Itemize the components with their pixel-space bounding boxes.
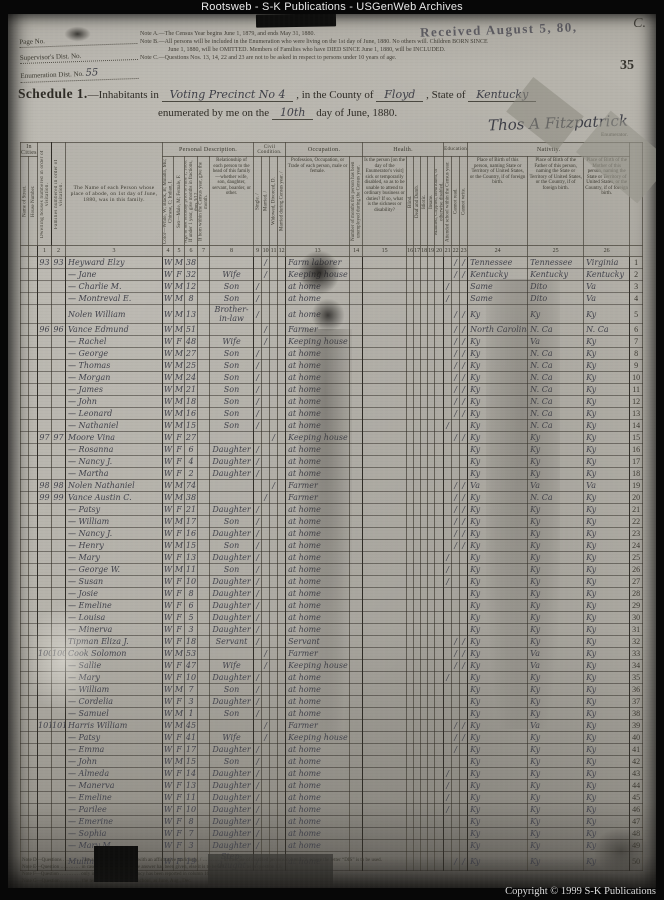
cell-age: 1 [185,708,198,720]
cell-maimed-mark [435,660,444,672]
cell-cannot-write-mark: / [460,324,468,336]
census-row: — SusanWF10Daughter/at home/KyKyKy27 [21,576,643,588]
cell-age: 8 [185,588,198,600]
col-occupation-header: Profession, Occupation, or Trade of each… [286,157,350,246]
cell-relationship [210,480,254,492]
cell-sickness [363,372,407,384]
cell-mother-birthplace: N. Ca [584,324,630,336]
cell-maimed-mark [435,269,444,281]
cell-birth-month [198,540,210,552]
cell-months-unemployed [350,396,363,408]
cell-insane-mark [428,324,435,336]
cell-school-mark [444,492,452,504]
cell-relationship: Daughter [210,588,254,600]
cell-age: 53 [185,648,198,660]
cell-relationship: Daughter [210,504,254,516]
cell-mother-birthplace: Ky [584,468,630,480]
cell-birth-month [198,816,210,828]
cell-age: 25 [185,360,198,372]
cell-widowed-mark [270,257,278,269]
cell-idiotic-mark [421,408,428,420]
cell-mother-birthplace: Ky [584,492,630,504]
cell-age: 15 [185,420,198,432]
cell-dwelling-no [38,576,52,588]
cell-person-name: Vance Austin C. [66,492,163,504]
cell-father-birthplace: Kentucky [528,269,584,281]
cell-married-year-mark [278,840,286,852]
cell-birth-month [198,516,210,528]
copyright-text: Copyright © 1999 S-K Publications [505,886,656,897]
precinct-handwriting: Voting Precinct No 4 [162,88,294,102]
group-health: Health. [363,143,444,157]
cell-sickness [363,384,407,396]
cell-dwelling-no [38,828,52,840]
cell-deaf-mark [414,744,421,756]
cell-maimed-mark [435,480,444,492]
cell-deaf-mark [414,780,421,792]
census-row: Tipman Eliza J.WF18Servant/Servant//KyKy… [21,636,643,648]
cell-sickness [363,708,407,720]
cell-age: 38 [185,492,198,504]
cell-deaf-mark [414,492,421,504]
cell-idiotic-mark [421,504,428,516]
cell-mother-birthplace: Ky [584,456,630,468]
cell-house [29,564,38,576]
cell-insane-mark [428,504,435,516]
cell-age: 24 [185,372,198,384]
cell-house [29,269,38,281]
cell-house [29,624,38,636]
cell-birth-month [198,828,210,840]
cell-street [21,269,29,281]
cell-age: 8 [185,816,198,828]
cell-street [21,324,29,336]
colnum-line [630,246,643,257]
cell-school-mark [444,408,452,420]
cell-sickness [363,257,407,269]
cell-deaf-mark [414,696,421,708]
cell-sex: F [174,612,185,624]
census-row: — Montreval E.WM8Son/at home/SameDitoVa4 [21,293,643,305]
cell-blind-mark [407,516,414,528]
cell-street [21,492,29,504]
cell-maimed-mark [435,384,444,396]
cell-insane-mark [428,372,435,384]
census-row: — JohnWM18Son/at home//KyN. CaKy12 [21,396,643,408]
cell-cannot-write-mark: / [460,732,468,744]
cell-street [21,360,29,372]
cell-family-no [52,744,66,756]
census-row: — Nancy J.WF16Daughter/at home//KyKyKy23 [21,528,643,540]
cell-widowed-mark [270,281,278,293]
cell-single-mark: / [254,576,262,588]
cell-insane-mark [428,396,435,408]
col-unemployed-header: Number of months this person has been un… [350,157,363,246]
cell-occupation: at home [286,840,350,852]
cell-widowed-mark [270,732,278,744]
cell-age: 3 [185,624,198,636]
cell-father-birthplace: Ky [528,540,584,552]
cell-blind-mark [407,257,414,269]
column-number: 9 [254,246,262,257]
cell-sex: F [174,269,185,281]
cell-father-birthplace: Ky [528,708,584,720]
cell-age: 11 [185,564,198,576]
cell-birth-month [198,720,210,732]
cell-birthplace: Ky [468,564,528,576]
cell-dwelling-no: 96 [38,324,52,336]
cell-cannot-write-mark: / [460,480,468,492]
cell-married-year-mark [278,305,286,324]
cell-maimed-mark [435,372,444,384]
cell-blind-mark [407,792,414,804]
cell-house [29,720,38,732]
cell-married-year-mark [278,336,286,348]
cell-birth-month [198,420,210,432]
cell-cannot-write-mark: / [460,384,468,396]
cell-cannot-write-mark: / [460,516,468,528]
cell-single-mark: / [254,420,262,432]
cell-sex: F [174,840,185,852]
cell-cannot-write-mark: / [460,648,468,660]
cell-mother-birthplace: Ky [584,348,630,360]
cell-occupation: Keeping house [286,432,350,444]
cell-married-year-mark [278,492,286,504]
cell-maimed-mark [435,636,444,648]
cell-person-name: — Nathaniel [66,420,163,432]
cell-relationship: Daughter [210,672,254,684]
cell-street [21,564,29,576]
cell-person-name: Cook Solomon [66,648,163,660]
cell-mother-birthplace: Va [584,480,630,492]
cell-birth-month [198,600,210,612]
cell-father-birthplace: Ky [528,600,584,612]
cell-birthplace: Ky [468,636,528,648]
cell-father-birthplace: N. Ca [528,360,584,372]
cell-deaf-mark [414,684,421,696]
cell-married-year-mark [278,372,286,384]
cell-relationship: Son [210,564,254,576]
col-dwelling-header: Dwelling houses numbered in order of vis… [40,148,50,240]
cell-cannot-read-mark: / [452,336,460,348]
cell-dwelling-no: 98 [38,480,52,492]
cell-idiotic-mark [421,384,428,396]
cell-cannot-read-mark [452,600,460,612]
cell-mother-birthplace: Ky [584,648,630,660]
cell-single-mark: / [254,384,262,396]
cell-married-year-mark [278,293,286,305]
cell-person-name: — Emerine [66,816,163,828]
cell-house [29,336,38,348]
cell-family-no: 93 [52,257,66,269]
cell-idiotic-mark [421,396,428,408]
cell-blind-mark [407,564,414,576]
cell-father-birthplace: Va [528,660,584,672]
cell-house [29,360,38,372]
cell-maimed-mark [435,576,444,588]
census-row: 9393Heyward ElzyWM38/Farm laborer//Tenne… [21,257,643,269]
cell-street [21,648,29,660]
cell-occupation: at home [286,696,350,708]
cell-single-mark: / [254,360,262,372]
cell-line-no: 35 [630,672,643,684]
cell-school-mark [444,720,452,732]
cell-sex: F [174,456,185,468]
cell-insane-mark [428,648,435,660]
cell-occupation: Keeping house [286,269,350,281]
cell-color: W [163,293,174,305]
cell-mother-birthplace: Ky [584,804,630,816]
cell-age: 5 [185,612,198,624]
cell-blind-mark [407,780,414,792]
cell-blind-mark [407,648,414,660]
cell-father-birthplace: Ky [528,696,584,708]
census-row: — JamesWM21Son/at home//KyN. CaKy11 [21,384,643,396]
cell-person-name: — John [66,396,163,408]
cell-sex: F [174,816,185,828]
cell-cannot-write-mark: / [460,408,468,420]
cell-street [21,756,29,768]
cell-birth-month [198,624,210,636]
cell-insane-mark [428,269,435,281]
cell-line-no: 4 [630,293,643,305]
cell-relationship: Daughter [210,456,254,468]
cell-house [29,324,38,336]
cell-age: 13 [185,552,198,564]
cell-relationship: Servant [210,636,254,648]
cell-line-no: 33 [630,648,643,660]
cell-house [29,384,38,396]
county-handwriting: Floyd [376,88,423,102]
cell-occupation: at home [286,396,350,408]
cell-sex: M [174,516,185,528]
cell-person-name: — George [66,348,163,360]
census-table-body: 9393Heyward ElzyWM38/Farm laborer//Tenne… [21,257,643,871]
cell-insane-mark [428,281,435,293]
cell-school-mark [444,840,452,852]
cell-dwelling-no [38,696,52,708]
corner-mark: C. [633,16,646,32]
cell-school-mark [444,540,452,552]
cell-cannot-read-mark [452,672,460,684]
cell-sickness [363,696,407,708]
cell-color: W [163,768,174,780]
cell-school-mark [444,324,452,336]
cell-line-no: 24 [630,540,643,552]
cell-school-mark: / [444,672,452,684]
cell-birth-month [198,257,210,269]
cell-age: 10 [185,576,198,588]
cell-relationship: Son [210,708,254,720]
cell-mother-birthplace: Ky [584,444,630,456]
cell-occupation: at home [286,564,350,576]
schedule-title: Schedule 1. [18,86,88,101]
cell-deaf-mark [414,732,421,744]
cell-person-name: Nolen William [66,305,163,324]
cell-family-no: 96 [52,324,66,336]
cell-deaf-mark [414,840,421,852]
cell-house [29,456,38,468]
signature-block: Thos A Fitzpatrick Enumerator. [488,114,628,138]
cell-street [21,540,29,552]
cell-age: 13 [185,780,198,792]
cell-house [29,648,38,660]
cell-cannot-write-mark: / [460,660,468,672]
cell-sickness [363,432,407,444]
cell-school-mark: / [444,293,452,305]
cell-cannot-read-mark [452,840,460,852]
cell-street [21,600,29,612]
cell-birthplace: Ky [468,672,528,684]
cell-father-birthplace: Ky [528,516,584,528]
cell-birthplace: Ky [468,408,528,420]
cell-birthplace: Ky [468,336,528,348]
cell-age: 11 [185,792,198,804]
cell-occupation: Farm laborer [286,257,350,269]
cell-age: 48 [185,336,198,348]
cell-birthplace: Ky [468,372,528,384]
cell-months-unemployed [350,384,363,396]
cell-school-mark: / [444,420,452,432]
cell-street [21,257,29,269]
census-row: 9696Vance EdmundWM51/Farmer//North Carol… [21,324,643,336]
cell-married-year-mark [278,540,286,552]
cell-color: W [163,540,174,552]
cell-line-no: 25 [630,552,643,564]
cell-line-no: 22 [630,516,643,528]
cell-line-no: 38 [630,708,643,720]
cell-color: W [163,576,174,588]
cell-single-mark [254,480,262,492]
cell-married-mark [262,576,270,588]
cell-sickness [363,305,407,324]
cell-family-no [52,305,66,324]
cell-cannot-read-mark: / [452,744,460,756]
cell-widowed-mark: / [270,480,278,492]
cell-dwelling-no [38,305,52,324]
cell-family-no [52,672,66,684]
cell-sickness [363,336,407,348]
cell-street [21,672,29,684]
cell-street [21,588,29,600]
cell-married-mark [262,281,270,293]
census-row: — JaneWF32Wife/Keeping house//KentuckyKe… [21,269,643,281]
column-numbers-row: 1234567891011121314151617181920212223242… [21,246,643,257]
cell-birthplace: Ky [468,444,528,456]
cell-single-mark: / [254,600,262,612]
cell-cannot-read-mark [452,456,460,468]
cell-widowed-mark [270,384,278,396]
cell-house [29,504,38,516]
cell-sex: F [174,444,185,456]
cell-occupation: at home [286,804,350,816]
cell-relationship: Wife [210,336,254,348]
cell-birthplace: Ky [468,660,528,672]
cell-sex: M [174,293,185,305]
cell-school-mark: / [444,576,452,588]
cell-color: W [163,708,174,720]
cell-married-mark [262,768,270,780]
census-row: — RachelWF48Wife/Keeping house//KyVaKy7 [21,336,643,348]
cell-school-mark [444,648,452,660]
cell-insane-mark [428,408,435,420]
cell-occupation: at home [286,780,350,792]
cell-cannot-read-mark: / [452,372,460,384]
cell-occupation: at home [286,816,350,828]
cell-house [29,744,38,756]
cell-insane-mark [428,552,435,564]
cell-street [21,444,29,456]
cell-widowed-mark [270,396,278,408]
cell-single-mark: / [254,816,262,828]
cell-months-unemployed [350,624,363,636]
cell-birth-month [198,768,210,780]
cell-birthplace: Ky [468,744,528,756]
cell-color: W [163,396,174,408]
cell-maimed-mark [435,684,444,696]
cell-blind-mark [407,528,414,540]
cell-line-no: 11 [630,384,643,396]
cell-occupation: at home [286,612,350,624]
form-notes: Note A.—The Census Year begins June 1, 1… [140,30,576,62]
census-row: — Nancy J.WF4Daughter/at homeKyKyKy17 [21,456,643,468]
cell-birth-month [198,552,210,564]
cell-birthplace: Ky [468,756,528,768]
cell-family-no [52,444,66,456]
cell-widowed-mark [270,293,278,305]
redaction-stamp [256,14,336,28]
cell-insane-mark [428,444,435,456]
cell-house [29,696,38,708]
census-row: — MorganWM24Son/at home//KyN. CaKy10 [21,372,643,384]
cell-single-mark: / [254,281,262,293]
cell-deaf-mark [414,828,421,840]
cell-dwelling-no [38,792,52,804]
cell-line-no: 17 [630,456,643,468]
cell-birthplace: Ky [468,384,528,396]
cell-father-birthplace: Ky [528,768,584,780]
cell-color: W [163,804,174,816]
cell-widowed-mark [270,612,278,624]
cell-house [29,672,38,684]
cell-person-name: — Emeline [66,600,163,612]
cell-cannot-read-mark: / [452,269,460,281]
cell-dwelling-no [38,281,52,293]
cell-insane-mark [428,420,435,432]
screenshot-root: Rootsweb - S-K Publications - USGenWeb A… [0,0,664,900]
cell-dwelling-no [38,804,52,816]
cell-school-mark [444,588,452,600]
cell-person-name: — Emma [66,744,163,756]
column-number: 6 [185,246,198,257]
cell-sickness [363,828,407,840]
cell-occupation: at home [286,360,350,372]
cell-insane-mark [428,492,435,504]
cell-months-unemployed [350,780,363,792]
cell-married-mark [262,600,270,612]
cell-maimed-mark [435,804,444,816]
note-a: Note A.—The Census Year begins June 1, 1… [140,30,576,38]
cell-months-unemployed [350,480,363,492]
cell-idiotic-mark [421,792,428,804]
cell-sex: M [174,684,185,696]
cell-occupation: Servant [286,636,350,648]
cell-sex: F [174,660,185,672]
cell-street [21,336,29,348]
cell-color: W [163,792,174,804]
cell-insane-mark [428,528,435,540]
cell-mother-birthplace: Ky [584,540,630,552]
